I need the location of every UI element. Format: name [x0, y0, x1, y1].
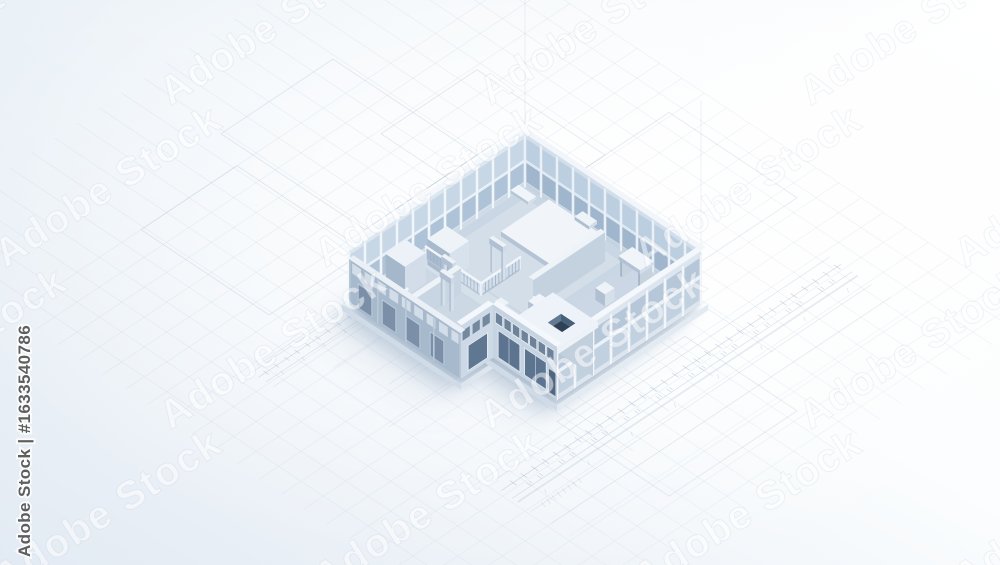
stock-id-watermark: Adobe Stock | #1633540786 [15, 325, 34, 557]
stock-photo-canvas: Adobe StockAdobe StockAdobe StockAdobe S… [0, 0, 1000, 565]
isometric-blueprint-render: Adobe StockAdobe StockAdobe StockAdobe S… [0, 0, 1000, 565]
